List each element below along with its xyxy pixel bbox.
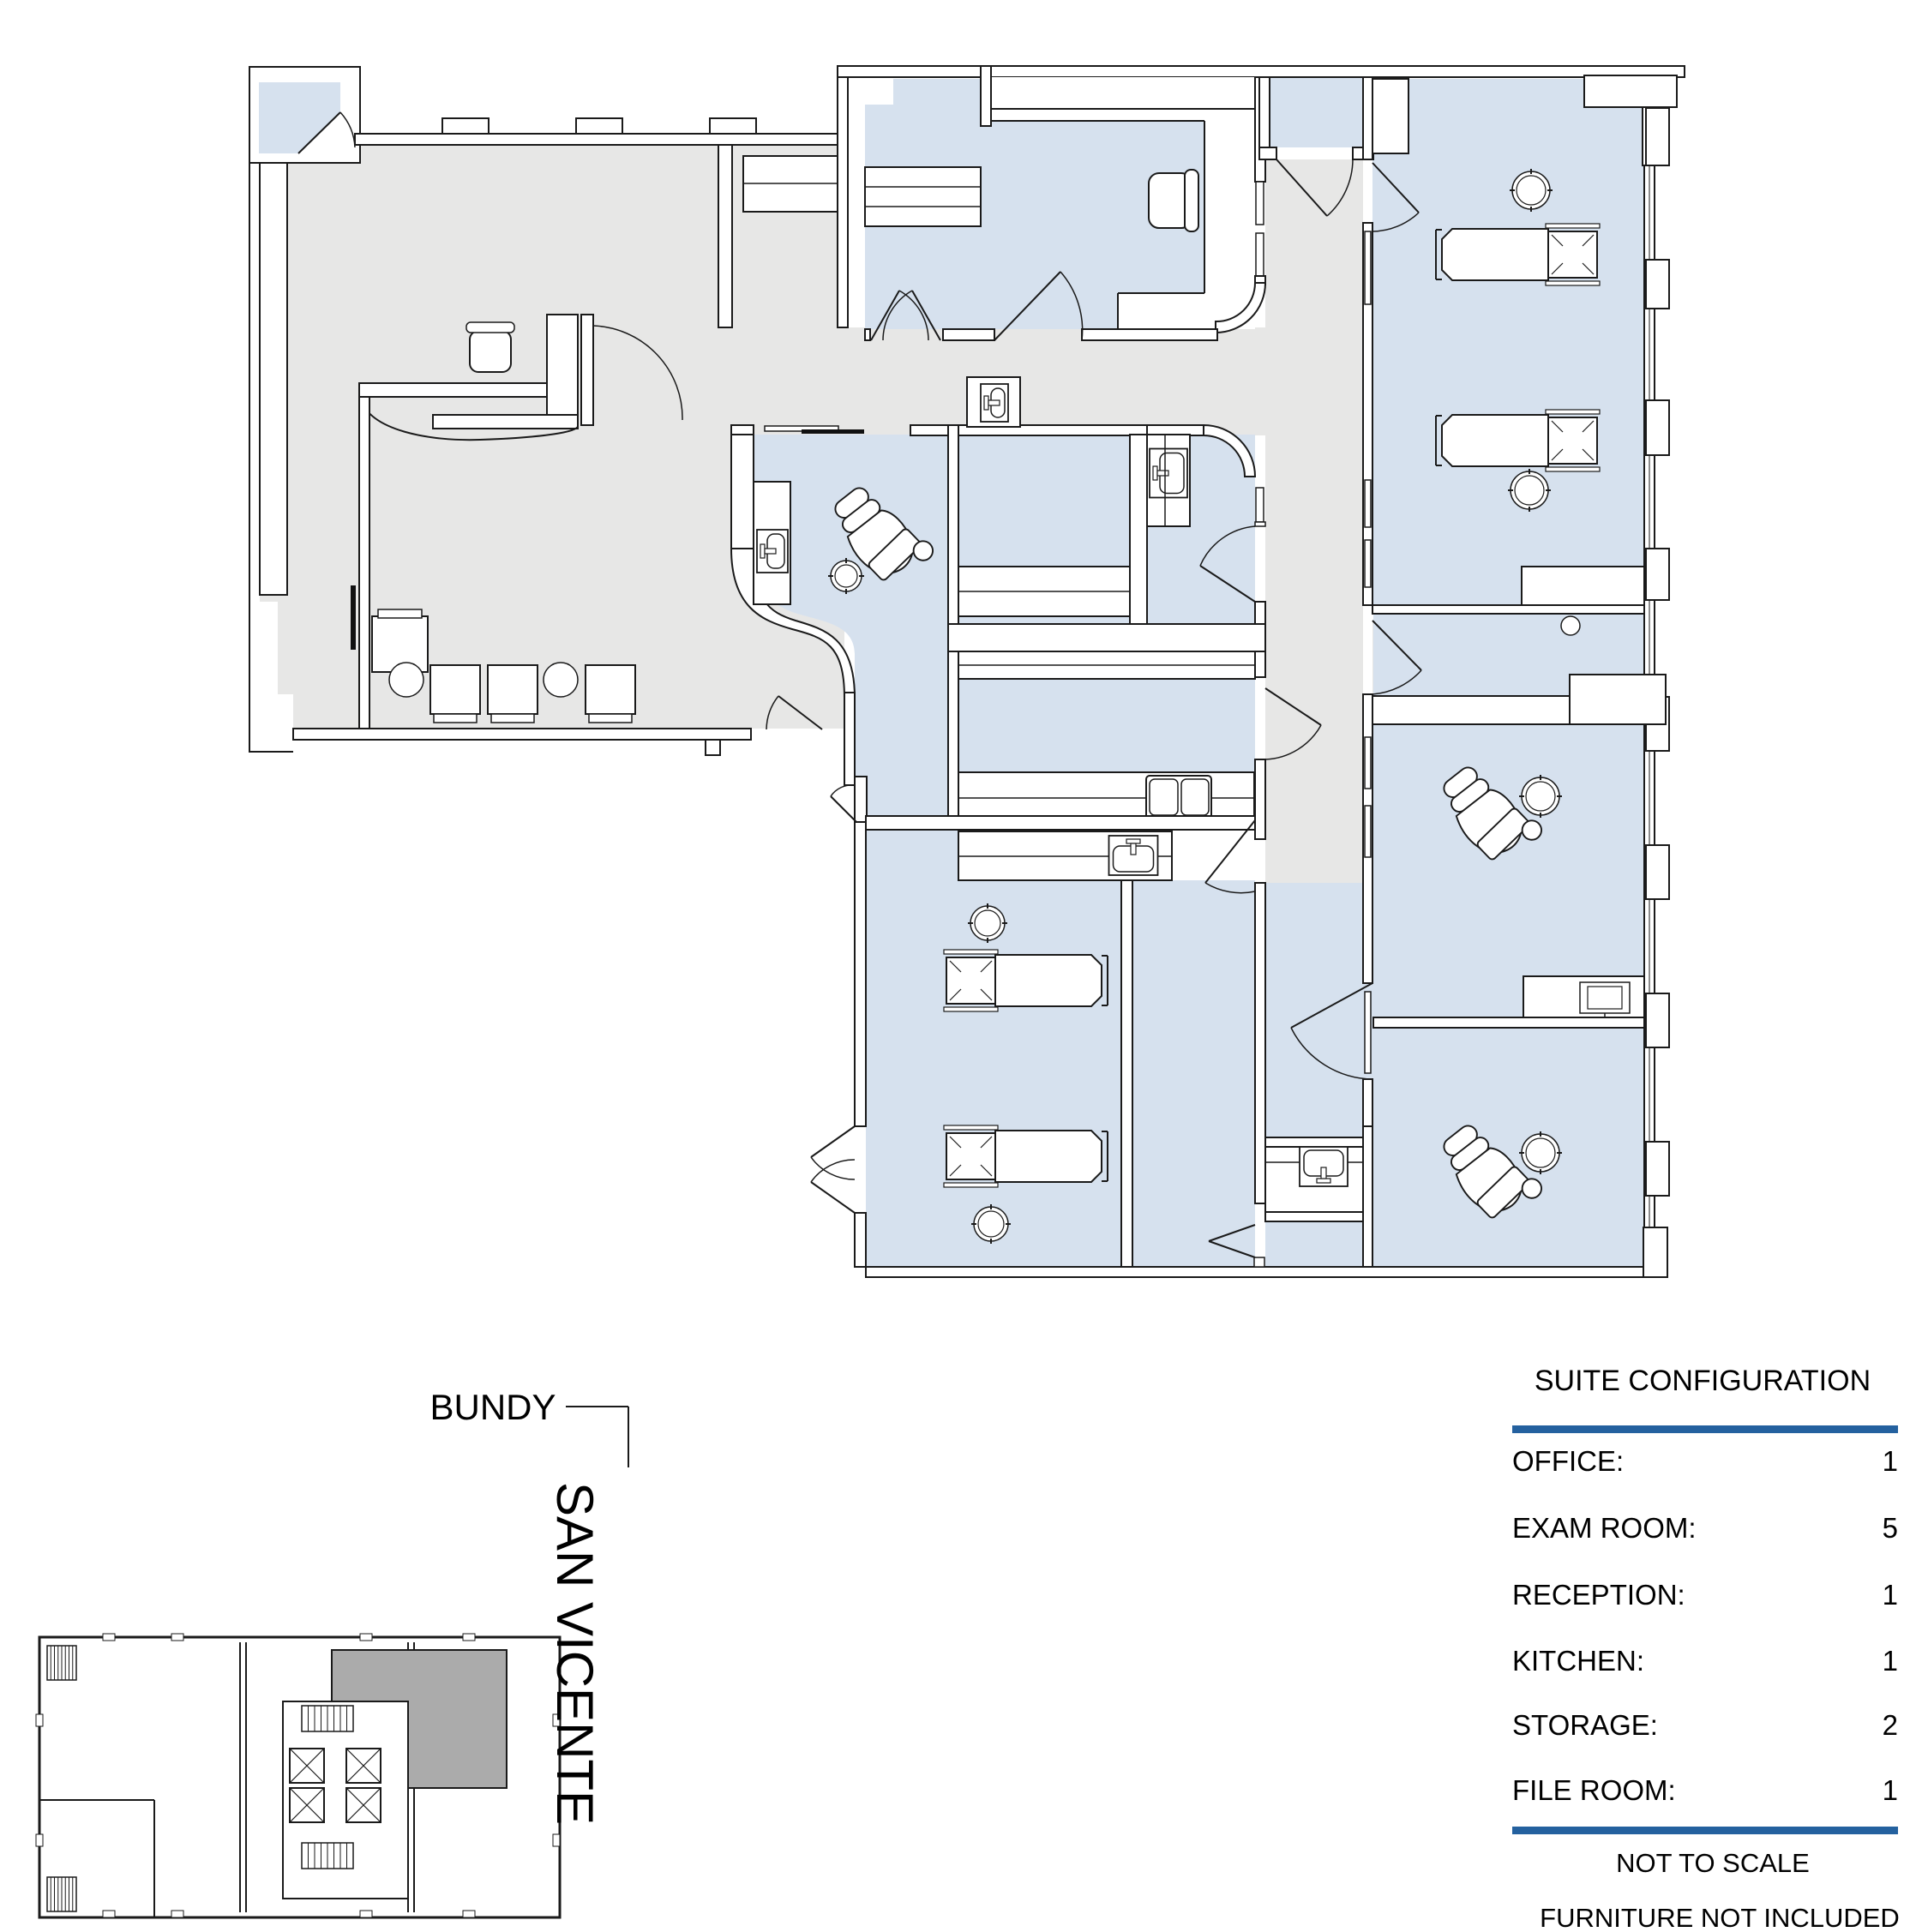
svg-text:FURNITURE NOT INCLUDED: FURNITURE NOT INCLUDED: [1540, 1903, 1900, 1932]
svg-text:1: 1: [1883, 1579, 1898, 1611]
svg-text:SAN VICENTE: SAN VICENTE: [546, 1482, 604, 1825]
svg-text:1: 1: [1883, 1774, 1898, 1806]
svg-text:FILE ROOM:: FILE ROOM:: [1512, 1774, 1676, 1806]
svg-text:EXAM ROOM:: EXAM ROOM:: [1512, 1512, 1697, 1544]
svg-text:NOT TO SCALE: NOT TO SCALE: [1616, 1848, 1810, 1878]
svg-text:KITCHEN:: KITCHEN:: [1512, 1645, 1644, 1677]
svg-text:5: 5: [1883, 1512, 1898, 1544]
svg-text:RECEPTION:: RECEPTION:: [1512, 1579, 1685, 1611]
svg-text:OFFICE:: OFFICE:: [1512, 1445, 1624, 1477]
svg-text:BUNDY: BUNDY: [429, 1387, 556, 1427]
svg-text:1: 1: [1883, 1645, 1898, 1677]
svg-text:STORAGE:: STORAGE:: [1512, 1709, 1658, 1741]
svg-text:2: 2: [1883, 1709, 1898, 1741]
svg-text:SUITE CONFIGURATION: SUITE CONFIGURATION: [1535, 1365, 1871, 1397]
svg-text:1: 1: [1883, 1445, 1898, 1477]
